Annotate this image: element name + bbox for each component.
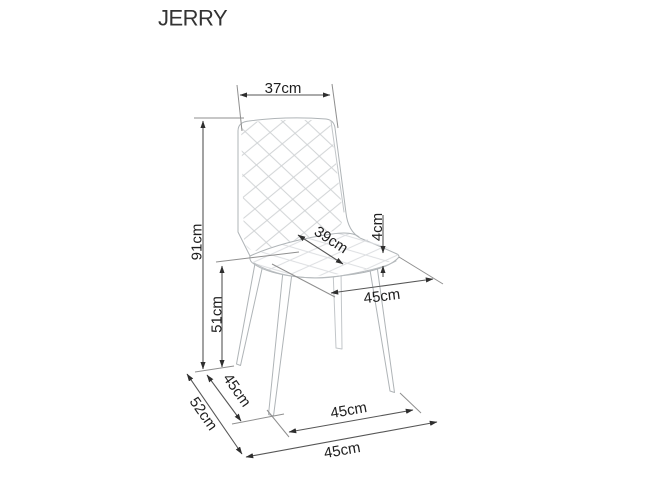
svg-text:45cm: 45cm <box>219 371 254 411</box>
svg-text:45cm: 45cm <box>323 439 362 462</box>
svg-text:JERRY: JERRY <box>158 6 228 31</box>
svg-text:4cm: 4cm <box>369 213 386 241</box>
svg-text:45cm: 45cm <box>363 286 401 307</box>
svg-text:52cm: 52cm <box>186 394 221 434</box>
svg-text:37cm: 37cm <box>265 80 302 97</box>
svg-text:51cm: 51cm <box>209 296 226 333</box>
svg-text:91cm: 91cm <box>189 224 206 261</box>
